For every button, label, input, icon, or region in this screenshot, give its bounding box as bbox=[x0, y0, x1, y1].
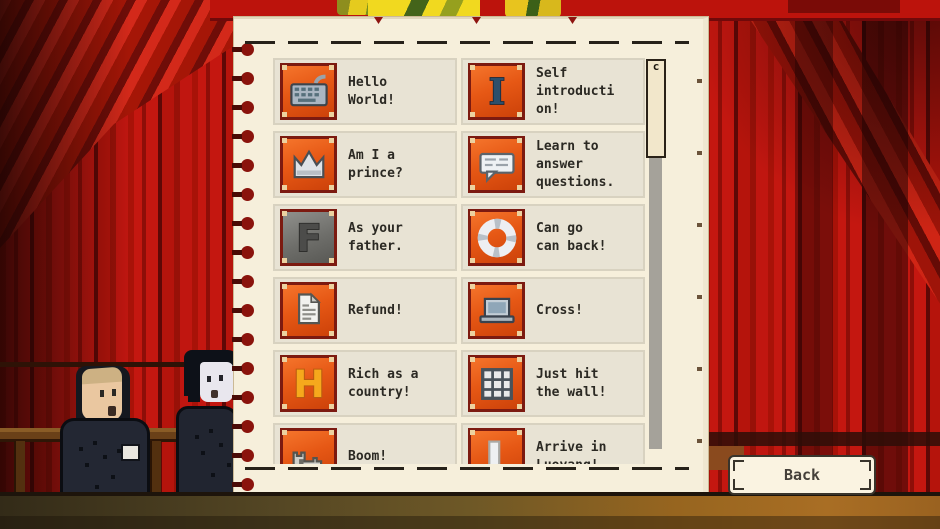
svg-text:H: H bbox=[293, 362, 324, 406]
document-icon bbox=[280, 282, 337, 339]
achievement-title: Hello World! bbox=[348, 74, 436, 110]
character-mouth bbox=[108, 406, 116, 416]
svg-text:I: I bbox=[488, 72, 504, 113]
crown-icon bbox=[280, 136, 337, 193]
corner-bracket-icon bbox=[860, 460, 871, 471]
achievement-item-just-hit-the-wall[interactable]: Just hit the wall! bbox=[461, 350, 645, 417]
ring-icon bbox=[468, 209, 525, 266]
character-robe bbox=[60, 418, 150, 495]
achievement-item-refund[interactable]: Refund! bbox=[273, 277, 457, 344]
character-right bbox=[176, 350, 238, 495]
character-hair bbox=[82, 367, 122, 385]
corner-bracket-icon bbox=[860, 479, 871, 490]
achievement-item-hello-world[interactable]: Hello World! bbox=[273, 58, 457, 125]
achievement-title: Boom! bbox=[348, 448, 436, 465]
achievement-item-boom[interactable]: Boom! bbox=[273, 423, 457, 464]
character-eye bbox=[112, 389, 116, 396]
achievement-item-am-i-a-prince[interactable]: Am I a prince? bbox=[273, 131, 457, 198]
achievement-title: Self introducti on! bbox=[536, 65, 624, 119]
back-button[interactable]: Back bbox=[728, 455, 876, 495]
garland-decoration bbox=[505, 0, 561, 17]
door-bar-icon bbox=[468, 428, 525, 464]
railing-post bbox=[14, 441, 25, 495]
page-notch bbox=[472, 17, 481, 24]
achievement-title: Arrive in Luoyang! bbox=[536, 439, 624, 465]
back-button-label: Back bbox=[784, 466, 820, 484]
page-dashed-line-bottom bbox=[245, 467, 689, 470]
achievement-title: Learn to answer questions. bbox=[536, 138, 624, 192]
achievement-title: Am I a prince? bbox=[348, 147, 436, 183]
character-mouth bbox=[211, 390, 218, 398]
achievement-title: Cross! bbox=[536, 302, 624, 320]
character-eye bbox=[207, 376, 211, 382]
corner-bracket-icon bbox=[733, 460, 744, 471]
achievement-title: Can go can back! bbox=[536, 220, 624, 256]
keyboard-icon bbox=[280, 63, 337, 120]
achievement-item-learn-to-answer[interactable]: Learn to answer questions. bbox=[461, 131, 645, 198]
character-left bbox=[60, 366, 150, 495]
character-hair bbox=[188, 358, 200, 402]
robe-speckles bbox=[93, 441, 97, 445]
achievement-item-as-your-father[interactable]: F As your father. bbox=[273, 204, 457, 271]
railing-bar-right bbox=[690, 432, 940, 446]
page-dashed-line-top bbox=[245, 41, 689, 44]
letter-i-icon: I bbox=[468, 63, 525, 120]
achievement-title: Refund! bbox=[348, 302, 436, 320]
svg-text:F: F bbox=[296, 216, 322, 260]
achievements-notebook: Hello World! I Self introducti on! A bbox=[234, 17, 708, 495]
character-eye bbox=[100, 390, 104, 397]
speech-bubble-icon bbox=[468, 136, 525, 193]
achievement-item-rich-as-a-country[interactable]: H Rich as a country! bbox=[273, 350, 457, 417]
laptop-icon bbox=[468, 282, 525, 339]
game-scene: Hello World! I Self introducti on! A bbox=[0, 0, 940, 529]
letter-f-icon: F bbox=[280, 209, 337, 266]
corner-bracket-icon bbox=[733, 479, 744, 490]
letter-h-icon: H bbox=[280, 355, 337, 412]
railing-post bbox=[150, 441, 161, 495]
valance-patch bbox=[788, 0, 900, 13]
achievement-item-cross[interactable]: Cross! bbox=[461, 277, 645, 344]
page-notch bbox=[374, 17, 383, 24]
achievement-item-self-introduction[interactable]: I Self introducti on! bbox=[461, 58, 645, 125]
achievement-title: Rich as a country! bbox=[348, 366, 436, 402]
scrollbar-glyph: c bbox=[653, 60, 660, 73]
spiral-binding-rings bbox=[241, 43, 254, 56]
achievement-title: Just hit the wall! bbox=[536, 366, 624, 402]
castle-icon bbox=[280, 428, 337, 464]
achievement-title: As your father. bbox=[348, 220, 436, 256]
achievement-item-arrive-in-luoyang[interactable]: Arrive in Luoyang! bbox=[461, 423, 645, 464]
character-robe bbox=[176, 406, 238, 495]
stage-floor bbox=[0, 492, 940, 529]
character-eye bbox=[219, 375, 223, 381]
achievement-list: Hello World! I Self introducti on! A bbox=[273, 58, 645, 464]
robe-pocket bbox=[121, 444, 140, 461]
page-notch bbox=[568, 17, 577, 24]
scrollbar-thumb[interactable]: c bbox=[646, 59, 666, 158]
spiral-binding-stems bbox=[232, 47, 242, 513]
brick-grid-icon bbox=[468, 355, 525, 412]
robe-speckles bbox=[209, 429, 213, 433]
page-edge-ticks bbox=[697, 79, 702, 499]
achievement-item-can-go-can-back[interactable]: Can go can back! bbox=[461, 204, 645, 271]
